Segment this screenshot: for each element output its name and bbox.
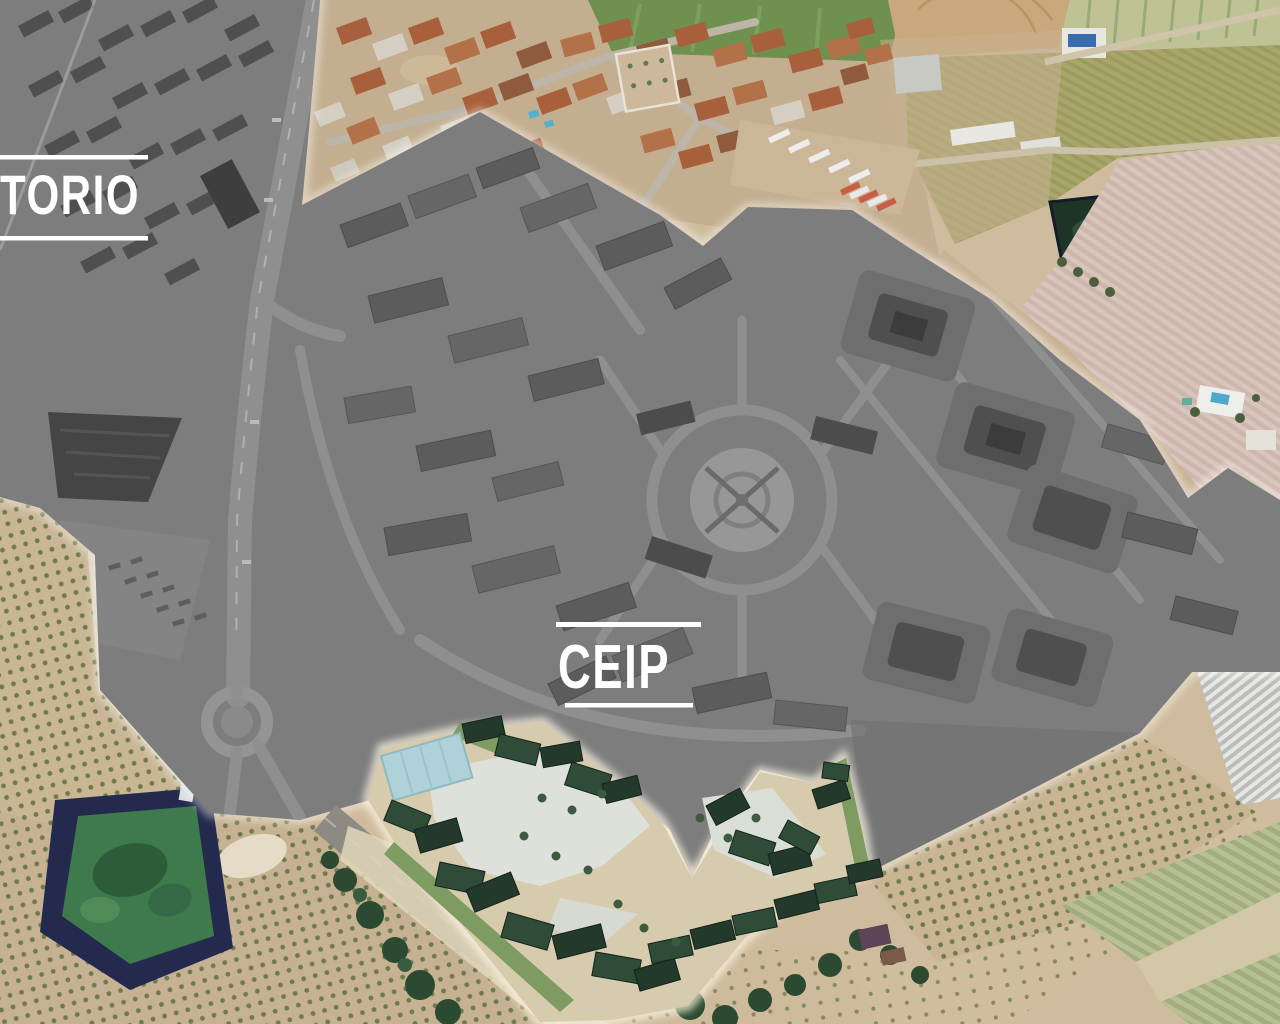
small-pool [1182, 398, 1192, 405]
farm-building [893, 54, 942, 94]
central-plaza [690, 448, 794, 552]
aerial-map: TORIO CEIP [0, 0, 1280, 1024]
ceip-underline [565, 703, 693, 708]
torio-underline [0, 236, 148, 241]
ceip-overline [556, 622, 701, 627]
walled-yard [616, 45, 679, 111]
torio-label: TORIO [0, 163, 140, 226]
ceip-label: CEIP [558, 633, 670, 702]
villa [1246, 430, 1276, 450]
solar-panels [1068, 34, 1096, 47]
torio-overline [0, 155, 148, 160]
